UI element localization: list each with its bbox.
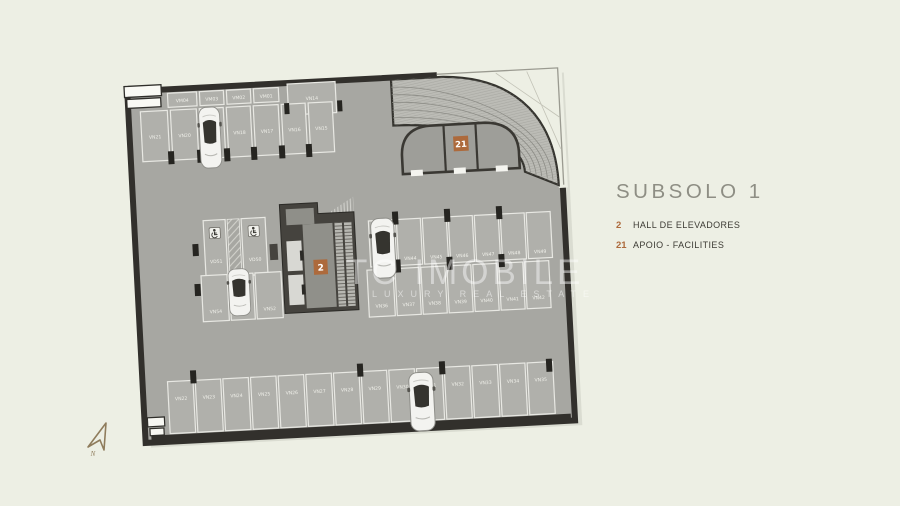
- door-opening: [496, 165, 508, 172]
- legend-label: HALL DE ELEVADORES: [633, 220, 740, 230]
- parking-stall: [499, 363, 527, 416]
- stall-label: VN24: [230, 393, 243, 400]
- hall-badge-number: 2: [317, 263, 324, 273]
- stall-label: VD51: [210, 259, 223, 266]
- legend-label: APOIO - FACILITIES: [633, 240, 724, 250]
- stall-label: VN15: [315, 125, 328, 132]
- watermark-tagline: LUXURY REAL ESTATE: [372, 289, 596, 299]
- north-arrow-glyph: [88, 423, 106, 450]
- car: [406, 372, 437, 432]
- wall-stub: [269, 244, 278, 260]
- parking-stall: [306, 373, 334, 426]
- stall-label: VN29: [368, 386, 381, 393]
- facilities-rooms: 21: [400, 121, 519, 177]
- legend: SUBSOLO 1 2 HALL DE ELEVADORES 21 APOIO …: [616, 180, 886, 260]
- stall-label: VN39: [454, 299, 467, 306]
- stall-label: VN17: [261, 128, 274, 135]
- stall-label: VN16: [288, 127, 301, 134]
- stall-label: VM01: [260, 93, 273, 100]
- legend-item-facilities: 21 APOIO - FACILITIES: [616, 240, 886, 251]
- stall-label: VN20: [178, 133, 191, 140]
- stall-label: VN37: [402, 302, 415, 309]
- stall-label: VN26: [285, 390, 298, 397]
- stall-label: VM04: [176, 98, 189, 105]
- watermark-brand: TC IMOBILE: [346, 253, 584, 292]
- parking-stall: [195, 379, 223, 432]
- floor-title: SUBSOLO 1: [616, 180, 886, 204]
- stall-label: VN54: [210, 309, 223, 316]
- wheelchair-icon: [248, 225, 260, 237]
- legend-number: 21: [616, 240, 633, 251]
- stall-label: VN18: [233, 130, 246, 137]
- entrance-gate: [124, 85, 162, 98]
- door-opening: [411, 170, 423, 177]
- wheelchair-icon: [209, 227, 221, 239]
- parking-stall: [223, 377, 251, 430]
- parking-stall: [361, 370, 389, 423]
- car: [226, 268, 253, 316]
- facilities-badge-number: 21: [455, 140, 467, 151]
- elevator-door: [302, 284, 306, 294]
- legend-item-hall: 2 HALL DE ELEVADORES: [616, 220, 886, 231]
- entrance-gate: [127, 98, 161, 109]
- stall-label: VM02: [232, 95, 245, 102]
- stall-label: VN52: [263, 306, 276, 313]
- wall-opening: [147, 417, 164, 427]
- stall-label: VN22: [175, 396, 188, 403]
- no-parking-hatch: [227, 219, 242, 277]
- parking-stall: [250, 376, 278, 429]
- stall-label: VN35: [534, 377, 547, 384]
- elevator-door: [300, 250, 304, 260]
- parking-stall: [167, 380, 195, 433]
- door-opening: [454, 167, 466, 174]
- parking-stall: [444, 366, 472, 419]
- wall-opening: [150, 428, 164, 436]
- legend-number: 2: [616, 220, 633, 231]
- page: 21 VM04 VM03 VM02 VM01 VN14 VN21: [0, 0, 900, 506]
- stall-label: VN14: [306, 95, 319, 102]
- stall-label: VN33: [479, 380, 492, 387]
- parking-stall: [472, 364, 500, 417]
- parking-stall: [278, 375, 306, 428]
- stall-label: VN34: [507, 378, 520, 385]
- stall-label: VN21: [149, 134, 162, 141]
- core-room: [286, 208, 315, 225]
- stall-label: VN23: [203, 394, 216, 401]
- stall-label: VN32: [451, 381, 464, 388]
- stall-label: VN36: [375, 303, 388, 310]
- stall-label: VD50: [249, 257, 262, 264]
- north-arrow-label: N: [90, 450, 96, 458]
- stall-label: VM03: [205, 96, 218, 103]
- parking-stall: [333, 372, 361, 425]
- north-arrow: N: [88, 423, 106, 458]
- stall-label: VN30: [396, 384, 409, 391]
- stall-label: VN25: [258, 391, 271, 398]
- stall-label: VN28: [341, 387, 354, 394]
- stall-label: VN38: [428, 300, 441, 307]
- accessible-stalls: VD51 VD50: [203, 217, 268, 277]
- stall-label: VN27: [313, 388, 326, 395]
- car: [196, 107, 223, 169]
